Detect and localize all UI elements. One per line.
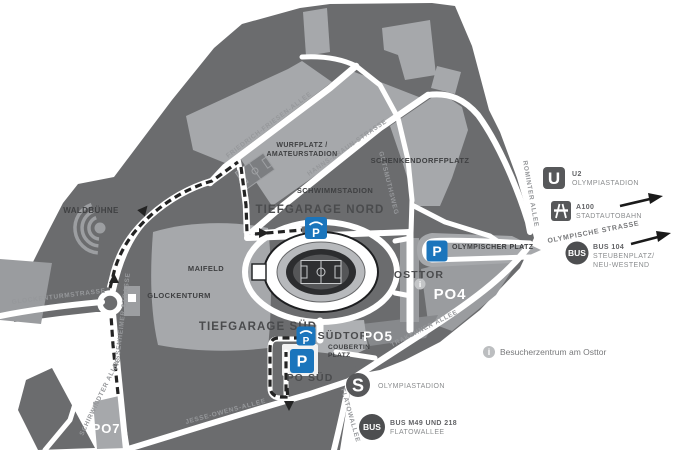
street-label-olympische-strasse: OLYMPISCHE STRASSE xyxy=(547,220,640,245)
stadium-marathon-gate xyxy=(252,264,266,280)
parking-olympischer-platz-icon: P xyxy=(427,241,448,262)
label-glockenturm: GLOCKENTURM xyxy=(147,291,211,300)
legend-u2-line2: OLYMPIASTADION xyxy=(572,180,639,187)
legend-a100-line2: STADTAUTOBAHN xyxy=(576,213,642,220)
label-po5: PO5 xyxy=(363,329,393,344)
bus-m49-label-1: BUS M49 UND 218 xyxy=(390,420,457,427)
label-wurfplatz-2: AMATEURSTADION xyxy=(266,151,337,158)
waldbuehne-stage xyxy=(95,223,106,234)
legend-bus104-line1: BUS 104 xyxy=(593,244,624,251)
visitor-center-info-icon: i xyxy=(483,346,495,358)
label-coubertin-1: COUBERTIN xyxy=(328,344,370,351)
svg-text:P: P xyxy=(312,228,320,240)
svg-text:BUS: BUS xyxy=(363,422,381,432)
road-osttor-stub-south xyxy=(395,293,411,296)
bus-m49-label-2: FLATOWALLEE xyxy=(390,429,444,436)
svg-text:P: P xyxy=(432,243,441,259)
legend-bus104-line3: NEU-WESTEND xyxy=(593,262,650,269)
svg-text:P: P xyxy=(297,354,308,371)
parking-garage-nord-icon: P xyxy=(305,217,327,240)
parking-po-sued-icon: P xyxy=(290,349,314,373)
sbahn-icon: S xyxy=(346,373,370,397)
label-suedtor: SÜDTOR xyxy=(318,329,369,342)
osttor-info-icon: i xyxy=(415,279,426,290)
svg-text:i: i xyxy=(419,279,421,289)
svg-text:P: P xyxy=(303,336,310,347)
svg-text:S: S xyxy=(352,376,364,396)
sbahn-station-label: OLYMPIASTADION xyxy=(378,383,445,390)
label-po4: PO4 xyxy=(434,286,467,303)
svg-text:i: i xyxy=(488,347,491,357)
label-tiefgarage-nord: TIEFGARAGE NORD xyxy=(256,204,385,216)
map-canvas: FRIEDRICH-FRIESEN-ALLEE HANNS-BRAUN-STRA… xyxy=(0,0,680,450)
legend-bus104-line2: STEUBENPLATZ/ xyxy=(593,253,654,260)
legend-visitor-center-label: Besucherzentrum am Osttor xyxy=(500,347,606,357)
label-schwimmstadion: SCHWIMMSTADION xyxy=(297,186,373,195)
bus-m49-icon: BUS xyxy=(359,414,385,440)
label-olympischer-platz: OLYMPISCHER PLATZ xyxy=(452,244,534,251)
bus-104-direction-arrow xyxy=(631,231,671,244)
label-coubertin-2: PLATZ xyxy=(328,352,350,359)
road-osttor-stub-north xyxy=(395,238,411,241)
ubahn-icon: U xyxy=(543,167,565,189)
glockenturm-tower xyxy=(128,294,136,302)
label-maifeld: MAIFELD xyxy=(188,264,224,273)
label-po7: PO7 xyxy=(92,421,121,436)
label-waldbuehne: WALDBÜHNE xyxy=(63,206,119,215)
autobahn-icon xyxy=(551,201,571,221)
legend-a100-line1: A100 xyxy=(576,204,594,211)
label-wurfplatz-1: WURFPLATZ / xyxy=(276,142,327,149)
stadium-pitch xyxy=(301,261,341,284)
area-top-block-1 xyxy=(303,8,330,56)
label-schenkendorffplatz: SCHENKENDORFFPLATZ xyxy=(371,156,470,165)
a100-direction-arrow xyxy=(620,193,663,206)
legend-u2-line1: U2 xyxy=(572,171,582,178)
transit-markers: S OLYMPIASTADION BUS BUS M49 UND 218 FLA… xyxy=(346,373,457,440)
bus-104-icon: BUS xyxy=(566,242,589,265)
parking-garage-sued-icon: P xyxy=(297,327,316,348)
olympiapark-map-page: FRIEDRICH-FRIESEN-ALLEE HANNS-BRAUN-STRA… xyxy=(0,0,680,450)
svg-text:U: U xyxy=(548,169,560,188)
svg-text:BUS: BUS xyxy=(568,248,586,258)
